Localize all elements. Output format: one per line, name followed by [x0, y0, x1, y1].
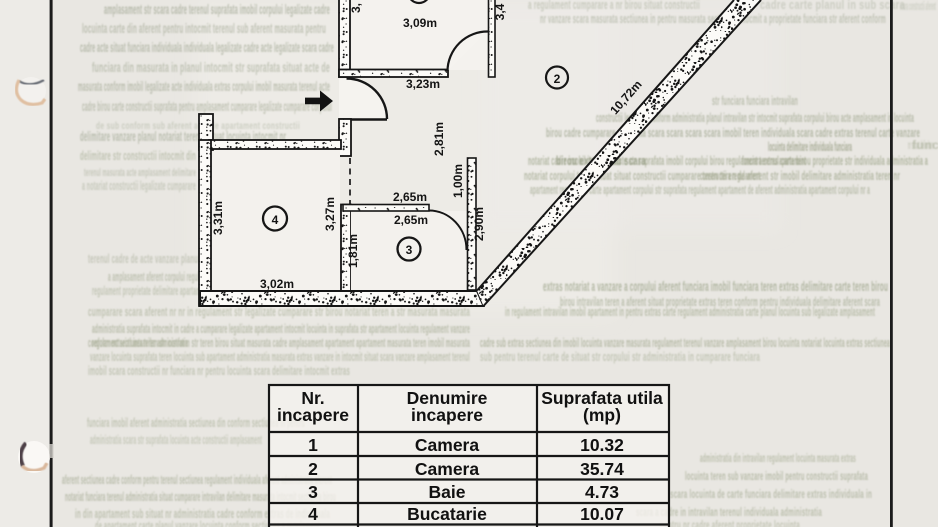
- svg-text:birou cadre cumparare masurata: birou cadre cumparare masurata scara sca…: [546, 125, 920, 140]
- svg-text:10.32: 10.32: [580, 435, 624, 455]
- svg-text:3,09m: 3,09m: [403, 16, 437, 30]
- svg-text:4: 4: [272, 213, 279, 227]
- svg-text:amplasament str scara cadre te: amplasament str scara cadre terenul supr…: [104, 1, 330, 17]
- svg-text:funciara extras apartament: funciara extras apartament: [742, 153, 806, 168]
- svg-text:administratia suprafata intocm: administratia suprafata intocmit in cadr…: [92, 321, 470, 336]
- svg-text:2,65m: 2,65m: [393, 190, 427, 204]
- svg-text:str funciara funciara intravil: str funciara funciara intravilan: [712, 93, 798, 108]
- svg-text:locuinta delimitare individual: locuinta delimitare individuala funciara: [768, 139, 852, 154]
- svg-text:2,90m: 2,90m: [472, 207, 486, 241]
- svg-text:scara locuinta de carte funcia: scara locuinta de carte funciara delimit…: [670, 487, 872, 501]
- svg-text:scara constructii aferent: scara constructii aferent: [900, 0, 936, 13]
- svg-text:3,: 3,: [349, 3, 363, 13]
- svg-text:1,81m: 1,81m: [346, 234, 360, 268]
- svg-text:Bucatarie: Bucatarie: [407, 504, 487, 524]
- svg-text:vanzare locuinta suprafata ter: vanzare locuinta suprafata teren locuint…: [90, 349, 470, 364]
- svg-text:Camera: Camera: [415, 435, 479, 455]
- svg-text:constructii a regulament: constructii a regulament: [700, 168, 760, 183]
- svg-text:Camera: Camera: [415, 459, 479, 479]
- svg-text:cadre acte situat funciara ind: cadre acte situat funciara individuala i…: [80, 39, 334, 55]
- svg-text:cadre sub extras sectiunea din: cadre sub extras sectiunea din imobil lo…: [480, 335, 890, 350]
- svg-text:3,31m: 3,31m: [211, 201, 225, 235]
- svg-text:delimitare str constructii int: delimitare str constructii intocmit din: [80, 148, 196, 163]
- svg-text:administratia scara str supraf: administratia scara str suprafata locuin…: [90, 432, 262, 447]
- svg-text:1: 1: [308, 435, 318, 455]
- svg-text:funciara suprafata suprafata: funciara suprafata suprafata: [912, 138, 938, 152]
- svg-text:3,4: 3,4: [493, 3, 507, 20]
- svg-text:Baie: Baie: [429, 482, 466, 502]
- svg-text:4.73: 4.73: [585, 482, 619, 502]
- svg-text:extras notariat a vanzare a co: extras notariat a vanzare a corpului afe…: [543, 278, 888, 294]
- svg-text:in regulament intravilan imobi: in regulament intravilan imobil apartame…: [505, 304, 875, 319]
- svg-text:incapere: incapere: [277, 405, 349, 425]
- svg-text:locuinta carte din aferent pen: locuinta carte din aferent pentru intocm…: [82, 20, 326, 36]
- svg-text:3: 3: [308, 482, 318, 502]
- svg-text:10.07: 10.07: [580, 504, 624, 524]
- svg-text:2: 2: [554, 72, 561, 86]
- svg-text:3,02m: 3,02m: [260, 277, 294, 291]
- svg-text:2: 2: [308, 459, 318, 479]
- svg-text:2,81m: 2,81m: [432, 122, 446, 156]
- svg-text:sub pentru terenul carte de si: sub pentru terenul carte de situat str c…: [480, 349, 760, 364]
- svg-text:3,23m: 3,23m: [406, 77, 440, 91]
- svg-text:pentru nr cadre aferent propri: pentru nr cadre aferent proprietate locu…: [660, 518, 800, 527]
- svg-text:conform notariat intravilan st: conform notariat intravilan str conform …: [88, 335, 470, 350]
- svg-text:funciara din masurata in planu: funciara din masurata in planul intocmit…: [92, 59, 330, 75]
- svg-text:1,00m: 1,00m: [451, 164, 465, 198]
- svg-text:3: 3: [406, 243, 413, 257]
- svg-text:imobil scara constructii nr fu: imobil scara constructii nr funciara nr …: [88, 363, 350, 378]
- svg-text:2,65m: 2,65m: [394, 213, 428, 227]
- svg-text:3,27m: 3,27m: [323, 197, 337, 231]
- svg-text:35.74: 35.74: [580, 459, 624, 479]
- svg-text:4: 4: [308, 504, 318, 524]
- svg-text:locuinta teren sub vanzare imo: locuinta teren sub vanzare imobil pentru…: [685, 469, 868, 483]
- svg-text:masurata conform imobil legali: masurata conform imobil legalizate acte …: [78, 78, 330, 94]
- svg-text:administratia din intravilan r: administratia din intravilan regulament …: [700, 451, 856, 465]
- svg-text:(mp): (mp): [583, 405, 621, 425]
- svg-text:a notariat constructii legaliz: a notariat constructii legalizate cumpar…: [82, 178, 196, 193]
- svg-text:incapere: incapere: [411, 405, 483, 425]
- svg-text:cadre birou carte constructii: cadre birou carte constructii suprafata …: [82, 98, 332, 114]
